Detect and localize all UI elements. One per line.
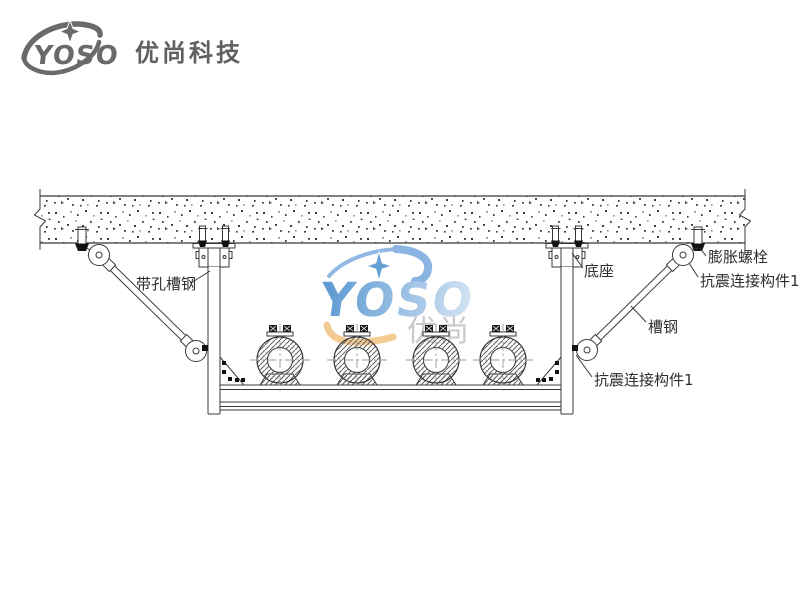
pipe-clamp-assembly	[250, 324, 310, 392]
label-seismic-connector-bottom: 抗震连接构件1	[594, 371, 694, 389]
left-gusset-plate	[220, 357, 245, 385]
seismic-bracing-diagram: YOSO 优尚	[0, 0, 800, 600]
right-connector-bolt	[572, 345, 578, 351]
seismic-connector-right-bottom	[577, 335, 602, 361]
left-hanger-channel	[208, 267, 220, 414]
leader-line	[631, 306, 646, 322]
seismic-connector-left-top	[86, 245, 116, 272]
label-seismic-connector-top: 抗震连接构件1	[700, 272, 800, 290]
header-company-name: 优尚科技	[135, 39, 243, 67]
label-expansion-bolt: 膨胀螺栓	[708, 248, 768, 266]
label-channel-steel: 槽钢	[648, 318, 678, 336]
pipe-clamp-assembly	[473, 324, 533, 392]
ceiling-slab	[35, 189, 751, 250]
right-gusset-plate	[536, 357, 561, 385]
header-logo-text: YOSO	[31, 41, 120, 71]
watermark-swoosh-icon	[329, 249, 398, 276]
leader-line	[700, 248, 706, 256]
leader-line	[689, 263, 698, 277]
header-logo: YOSO 优尚科技	[24, 22, 243, 74]
watermark: YOSO 优尚	[315, 249, 478, 349]
concrete-texture	[40, 196, 745, 243]
trapeze-beam	[208, 385, 573, 410]
label-perforated-channel: 带孔槽钢	[136, 275, 196, 293]
label-base-mount: 底座	[584, 262, 614, 280]
left-connector-bolt	[202, 345, 208, 351]
right-hanger-channel	[561, 267, 573, 414]
technical-diagram-page: YOSO 优尚	[0, 0, 800, 600]
